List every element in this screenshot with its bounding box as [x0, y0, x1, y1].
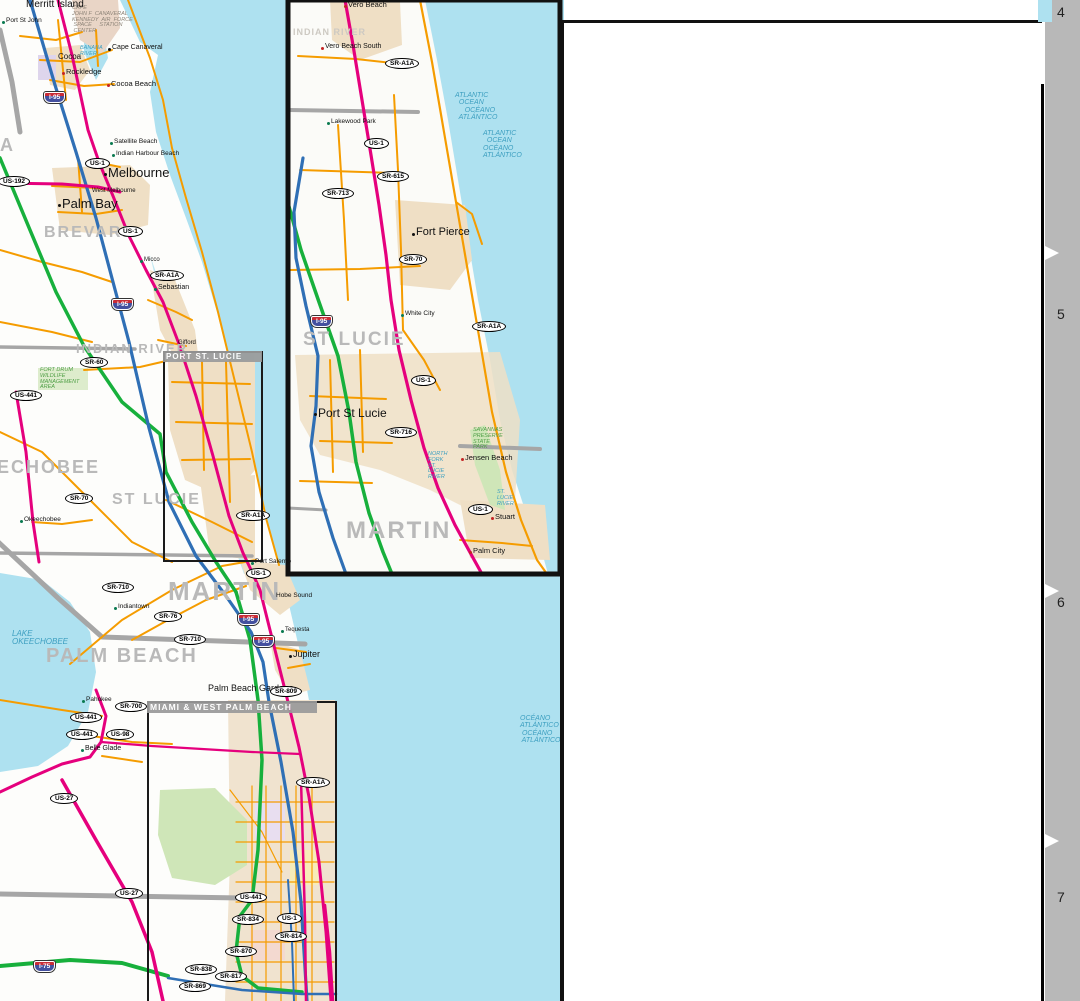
ruler-notch: [1045, 584, 1059, 598]
lake-okeechobee: [0, 573, 96, 772]
urban-melbourne: [52, 165, 150, 235]
inset-map: [288, 0, 560, 574]
ruler-notch: [1045, 834, 1059, 848]
urban-patch: [250, 930, 285, 960]
grid-row-number: 4: [1057, 4, 1065, 20]
ruler-notch: [1045, 246, 1059, 260]
ruler-ocean-sliver: [1038, 0, 1052, 22]
page: BREVARDINDIAN RIVEROKEECHOBEEST LUCIEMAR…: [0, 0, 1080, 1001]
panel-left-border: [560, 20, 564, 1001]
zip-table-panel: ZIP Code Index/Grid Locator ZIPZIP NAMEL…: [564, 0, 1042, 1001]
grid-ruler: 4567: [1045, 0, 1080, 1001]
map-roads-svg: [0, 0, 565, 1001]
map-panel: [0, 0, 565, 1001]
panel-top-border: [560, 20, 1042, 23]
park-fortdrum: [38, 368, 88, 390]
ruler-border: [1041, 84, 1044, 1001]
grid-row-number: 5: [1057, 306, 1065, 322]
grid-row-number: 7: [1057, 889, 1065, 905]
